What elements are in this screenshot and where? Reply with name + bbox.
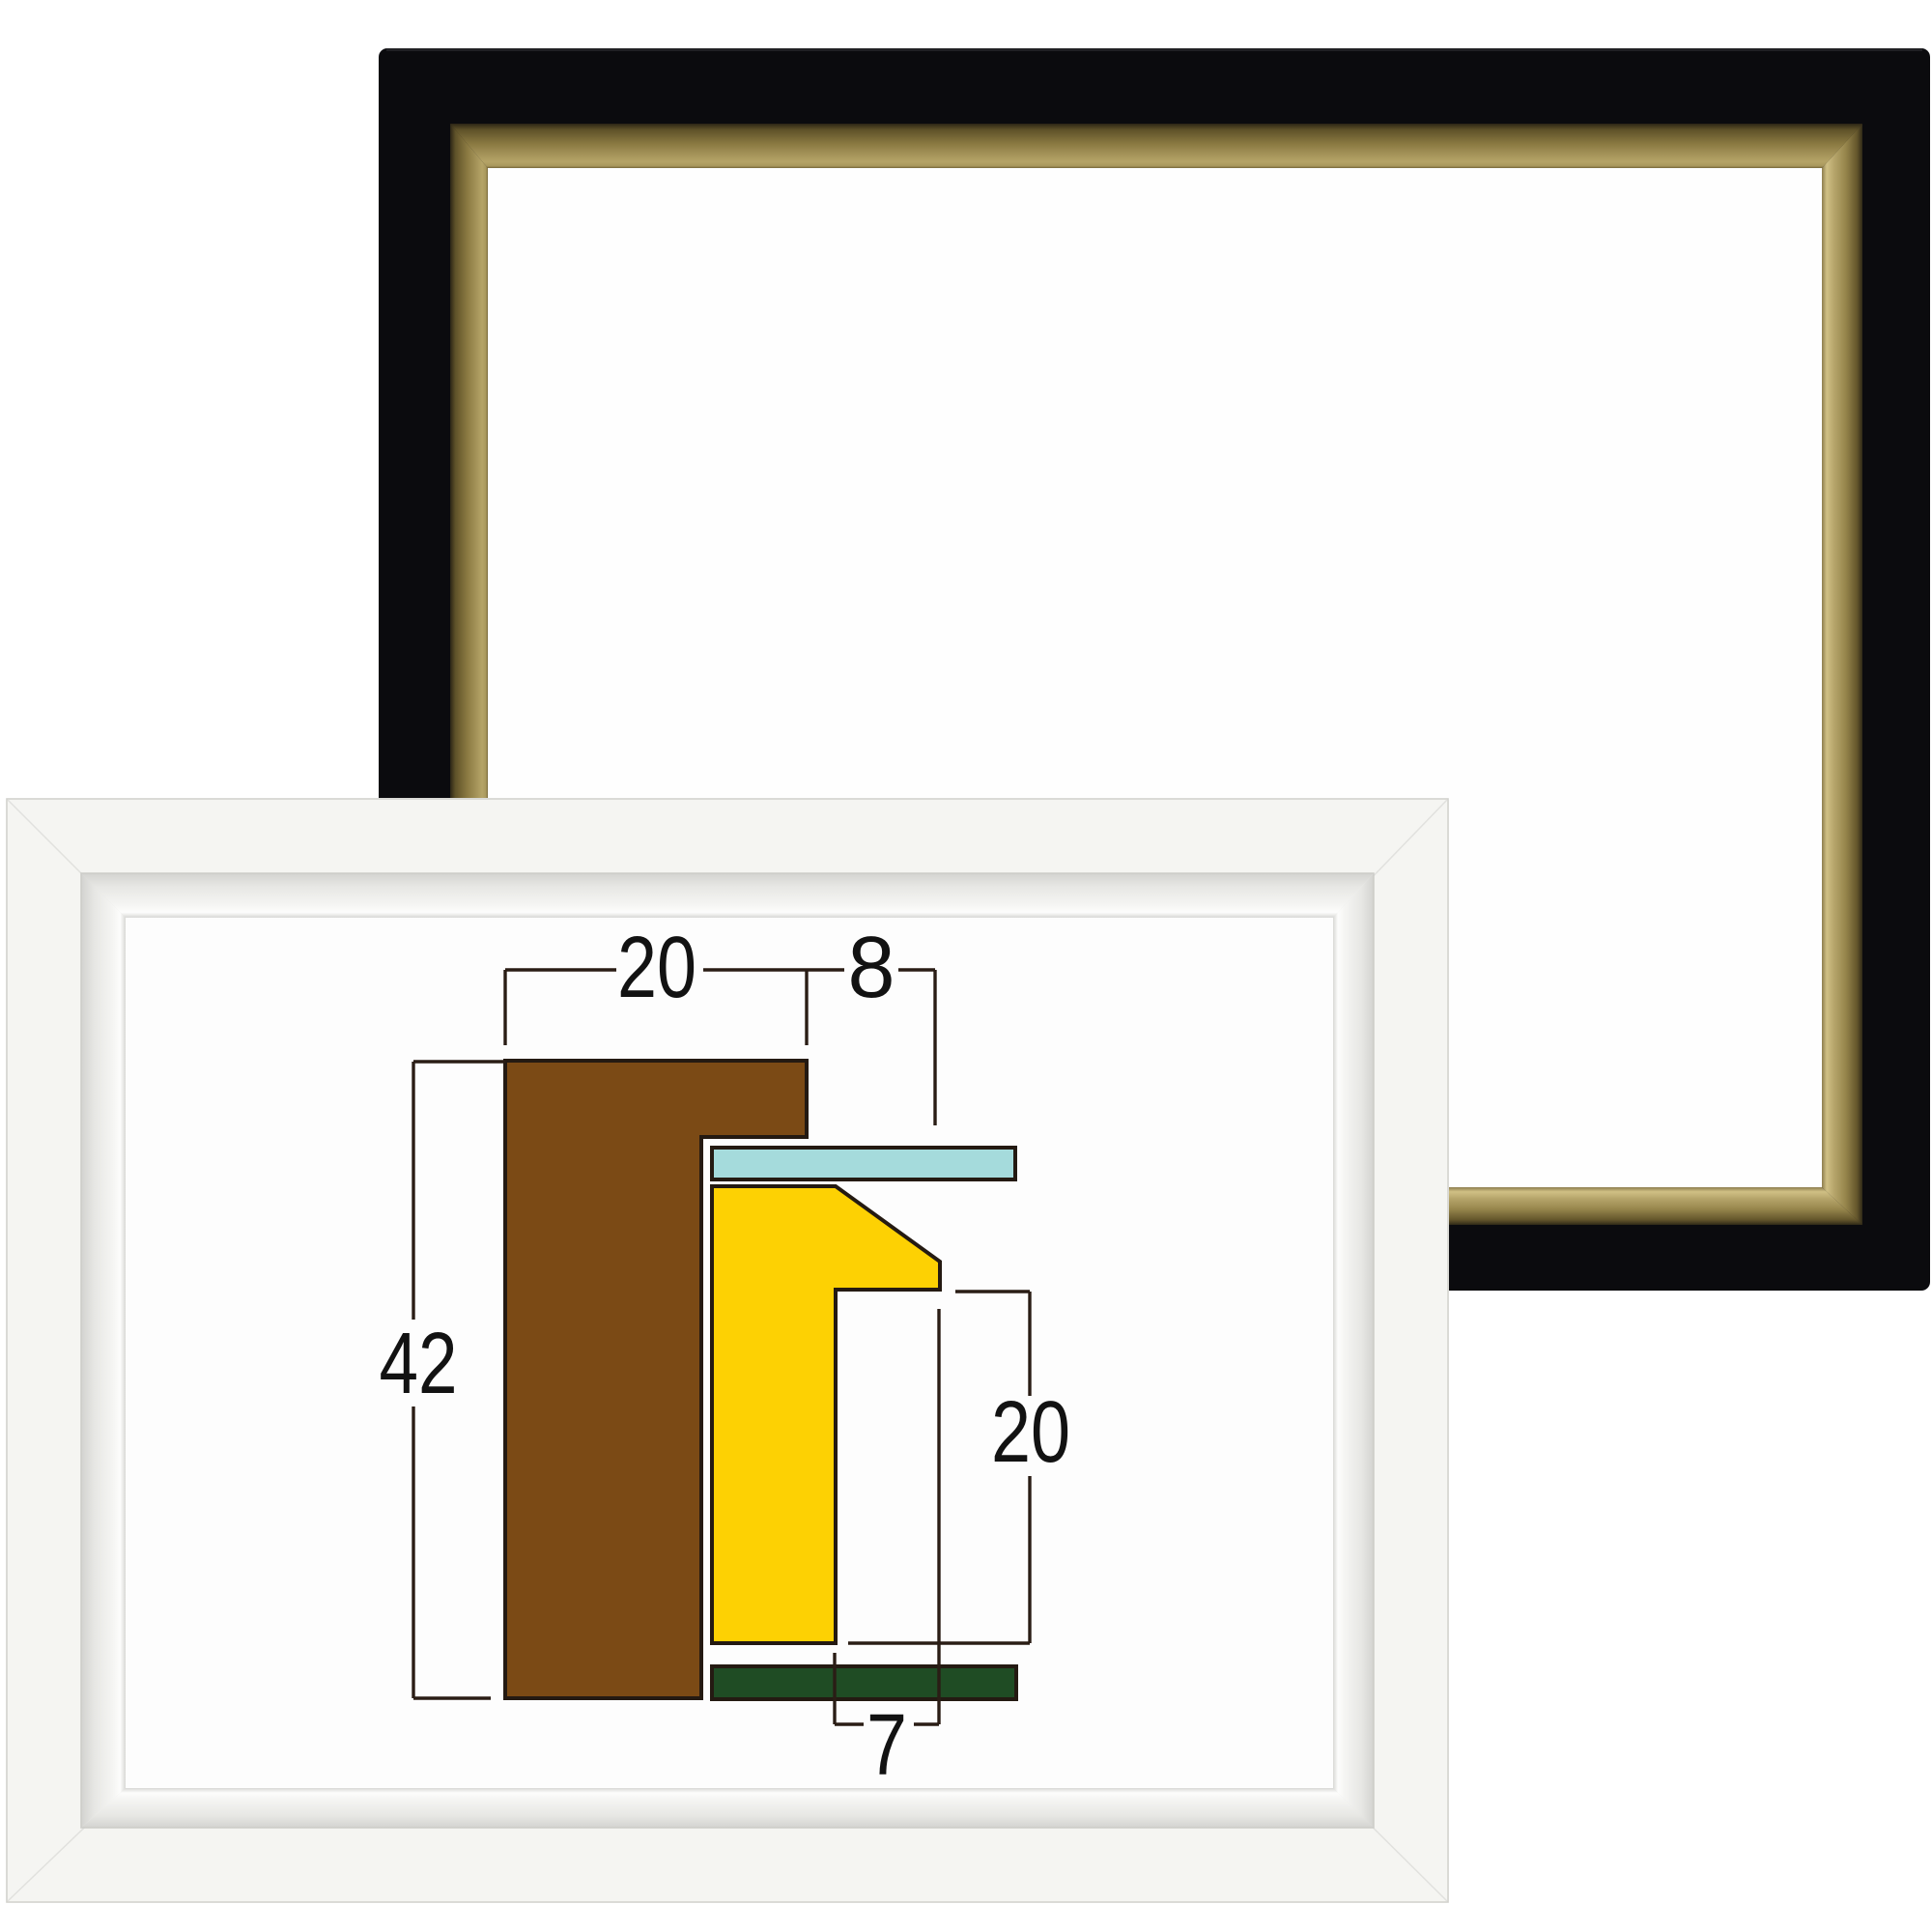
svg-text:7: 7 [867, 1697, 907, 1794]
svg-text:8: 8 [848, 920, 895, 1016]
svg-text:20: 20 [991, 1384, 1070, 1481]
svg-text:42: 42 [380, 1316, 458, 1412]
svg-text:20: 20 [617, 920, 696, 1016]
